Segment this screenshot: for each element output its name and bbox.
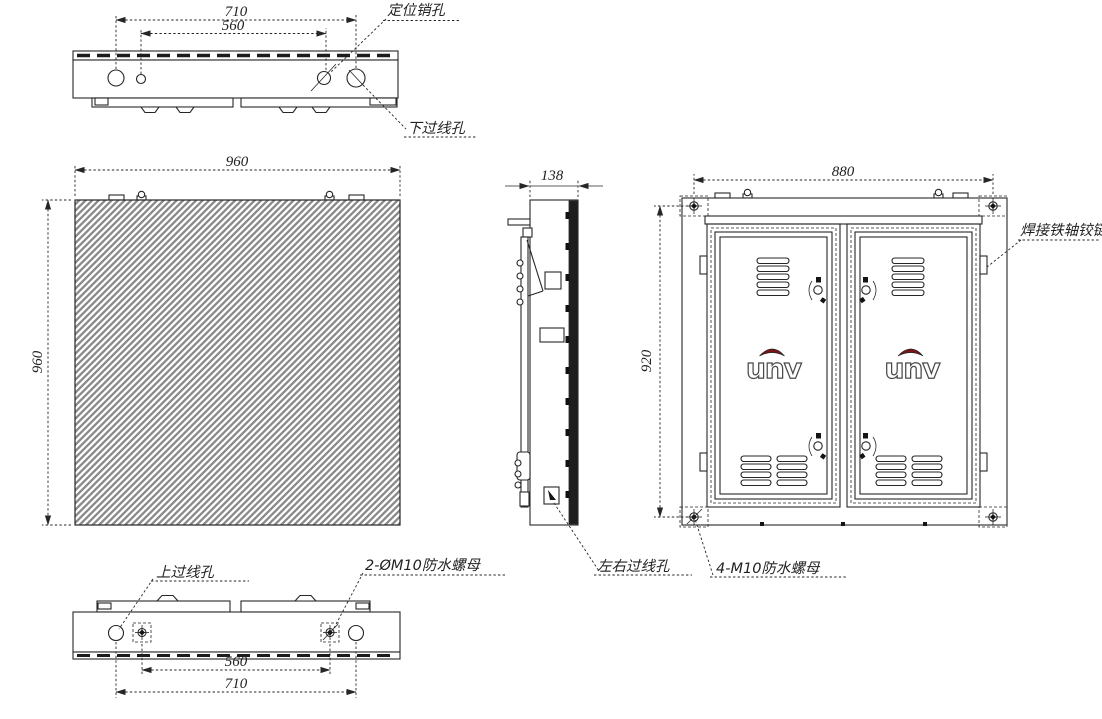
right-door-unv-logo: unv [884, 349, 940, 385]
label-upper-cable-hole-text: 上过线孔 [156, 564, 214, 581]
back-view-rain-hood [705, 216, 982, 224]
dim-bottom-710: 710 [116, 676, 356, 692]
top-view-flange [92, 98, 397, 113]
dim-front-height: 960 [30, 200, 48, 525]
unv-logo-text: unv [746, 352, 802, 385]
dim-side-depth: 138 [505, 168, 603, 186]
engineering-drawing: 710 560 定位销孔 下过线孔 [0, 0, 1102, 719]
label-side-cable-hole-text: 左右过线孔 [597, 558, 670, 575]
label-welded-hinge-text: 焊接铁轴铰链 [1020, 222, 1102, 239]
dim-bottom-560-text: 560 [225, 654, 248, 670]
left-door-unv-logo: unv [746, 349, 802, 385]
label-back-waterproof-nuts: 4-M10防水螺母 [695, 519, 846, 577]
back-view-top-lugs [715, 189, 968, 198]
top-view-positioning-pin-hole [318, 72, 331, 85]
right-door-hinge-bottom [980, 453, 987, 471]
left-door-hinge-top [700, 256, 707, 274]
dim-front-width-text: 960 [226, 154, 249, 170]
label-back-waterproof-nuts-text: 4-M10防水螺母 [716, 560, 821, 577]
top-view-small-hole [137, 75, 146, 84]
side-view-face-strip [569, 201, 578, 524]
label-lower-cable-hole-text: 下过线孔 [407, 120, 465, 137]
dim-front-width: 960 [75, 154, 400, 170]
top-view: 710 560 定位销孔 下过线孔 [73, 2, 477, 137]
bottom-view-cable-hole [109, 626, 124, 641]
dim-front-height-text: 960 [30, 350, 46, 373]
dim-back-height: 920 [639, 206, 660, 517]
bottom-view-flange [97, 596, 370, 613]
label-bottom-waterproof-nuts-text: 2-ØM10防水螺母 [365, 557, 481, 574]
left-door-hinge-bottom [700, 453, 707, 471]
bottom-view-small-hole [349, 626, 364, 641]
back-view-cabinet [682, 198, 1007, 525]
dim-side-depth-text: 138 [541, 168, 564, 184]
right-door-hinge-top [980, 256, 987, 274]
bottom-view: 560 710 上过线孔 2-ØM10防水螺母 [73, 557, 507, 698]
dim-back-width-text: 880 [832, 164, 855, 180]
dim-back-height-text: 920 [639, 349, 655, 372]
back-view: unv [639, 164, 1102, 577]
dim-back-width: 880 [694, 164, 993, 180]
drawing-canvas: 710 560 定位销孔 下过线孔 [0, 0, 1102, 719]
front-view-top-lugs [109, 191, 364, 200]
top-view-lifting-hole [108, 70, 124, 86]
unv-logo-text: unv [884, 352, 940, 385]
front-view-led-face [75, 200, 400, 525]
side-view: 138 左右过线孔 [505, 168, 692, 575]
label-positioning-pin-hole-text: 定位销孔 [387, 2, 445, 19]
dim-bottom-710-text: 710 [225, 676, 248, 692]
front-view: 960 960 [30, 154, 400, 525]
dim-top-560-text: 560 [222, 18, 245, 34]
